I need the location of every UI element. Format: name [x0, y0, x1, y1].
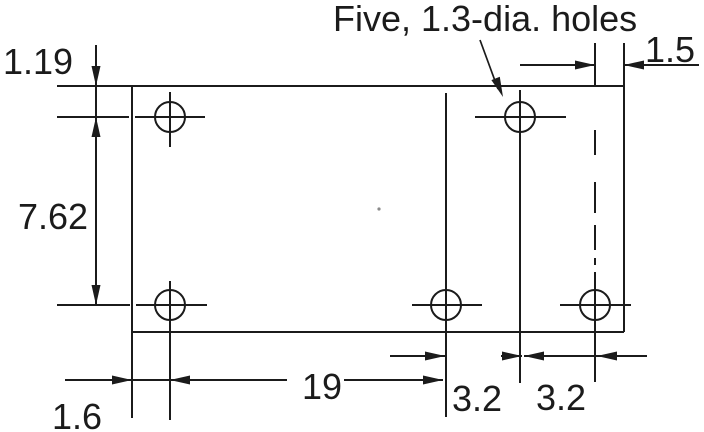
arrowhead-right-icon	[575, 61, 595, 70]
dim-label-1-5: 1.5	[645, 29, 695, 70]
hole-top-right	[475, 90, 566, 383]
note-group: Five, 1.3-dia. holes	[333, 0, 637, 97]
arrowhead-left-icon	[170, 376, 190, 385]
arrowhead-left-icon	[624, 61, 644, 70]
arrowhead-left-icon	[524, 352, 544, 361]
dim-vertical-group: 1.19 7.62	[3, 41, 132, 305]
drawing-page: 1.19 7.62 1.5 3.2 3.2 1.6 19 Five, 1.3-d…	[0, 0, 704, 432]
arrowhead-right-icon	[112, 376, 132, 385]
technical-drawing: 1.19 7.62 1.5 3.2 3.2 1.6 19 Five, 1.3-d…	[0, 0, 704, 432]
dim-label-1-19: 1.19	[3, 41, 73, 82]
arrowhead-left-icon	[597, 352, 617, 361]
dim-hole-spacing-group: 3.2 3.2	[390, 352, 647, 420]
hole-top-left	[135, 92, 205, 147]
arrowhead-down-icon	[92, 285, 101, 305]
hole-bottom-left	[136, 281, 207, 420]
dim-label-7-62: 7.62	[18, 196, 88, 237]
dim-label-1-6: 1.6	[52, 396, 102, 432]
hole-bottom-middle	[412, 93, 482, 417]
arrowhead-right-icon	[425, 352, 445, 361]
dim-label-19: 19	[302, 366, 342, 407]
stray-dot	[377, 207, 380, 210]
dim-bottom-row-group: 1.6 19	[52, 332, 443, 432]
arrowhead-up-icon	[92, 117, 101, 137]
dim-label-3-2-left: 3.2	[452, 378, 502, 419]
note-label: Five, 1.3-dia. holes	[333, 0, 637, 39]
arrowhead-down-icon	[92, 66, 101, 86]
dim-label-3-2-right: 3.2	[536, 377, 586, 418]
arrowhead-right-icon	[423, 376, 443, 385]
